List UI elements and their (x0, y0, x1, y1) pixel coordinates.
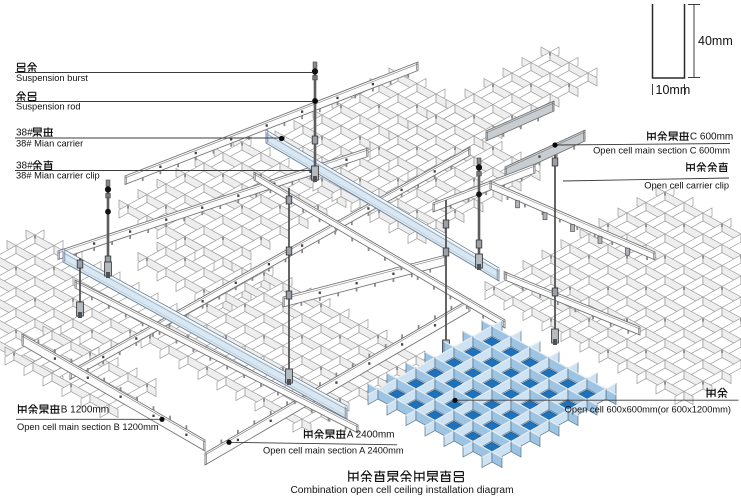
svg-text:Open cell main section C 600mm: Open cell main section C 600mm (593, 146, 730, 156)
svg-text:10mm: 10mm (656, 83, 691, 97)
svg-text:Open cell main section A 2400m: Open cell main section A 2400mm (263, 446, 404, 456)
svg-text:Suspension rod: Suspension rod (16, 102, 81, 112)
svg-text:A 2400mm: A 2400mm (347, 430, 395, 441)
svg-text:38#: 38# (16, 128, 33, 139)
svg-text:B 1200mm: B 1200mm (61, 405, 109, 416)
svg-text:38# Mian carrier clip: 38# Mian carrier clip (16, 171, 100, 181)
svg-text:Open cell carrier clip: Open cell carrier clip (644, 181, 729, 191)
svg-text:Open cell 600x600mm(or 600x120: Open cell 600x600mm(or 600x1200mm) (565, 405, 731, 415)
svg-text:C 600mm: C 600mm (690, 132, 733, 143)
svg-text:Combination open cell ceiling: Combination open cell ceiling installati… (290, 485, 513, 496)
svg-text:38# Mian carrier: 38# Mian carrier (16, 139, 83, 149)
svg-text:Suspension burst: Suspension burst (16, 73, 88, 83)
svg-text:Open cell main section B 1200m: Open cell main section B 1200mm (17, 422, 159, 432)
svg-text:40mm: 40mm (698, 34, 733, 48)
